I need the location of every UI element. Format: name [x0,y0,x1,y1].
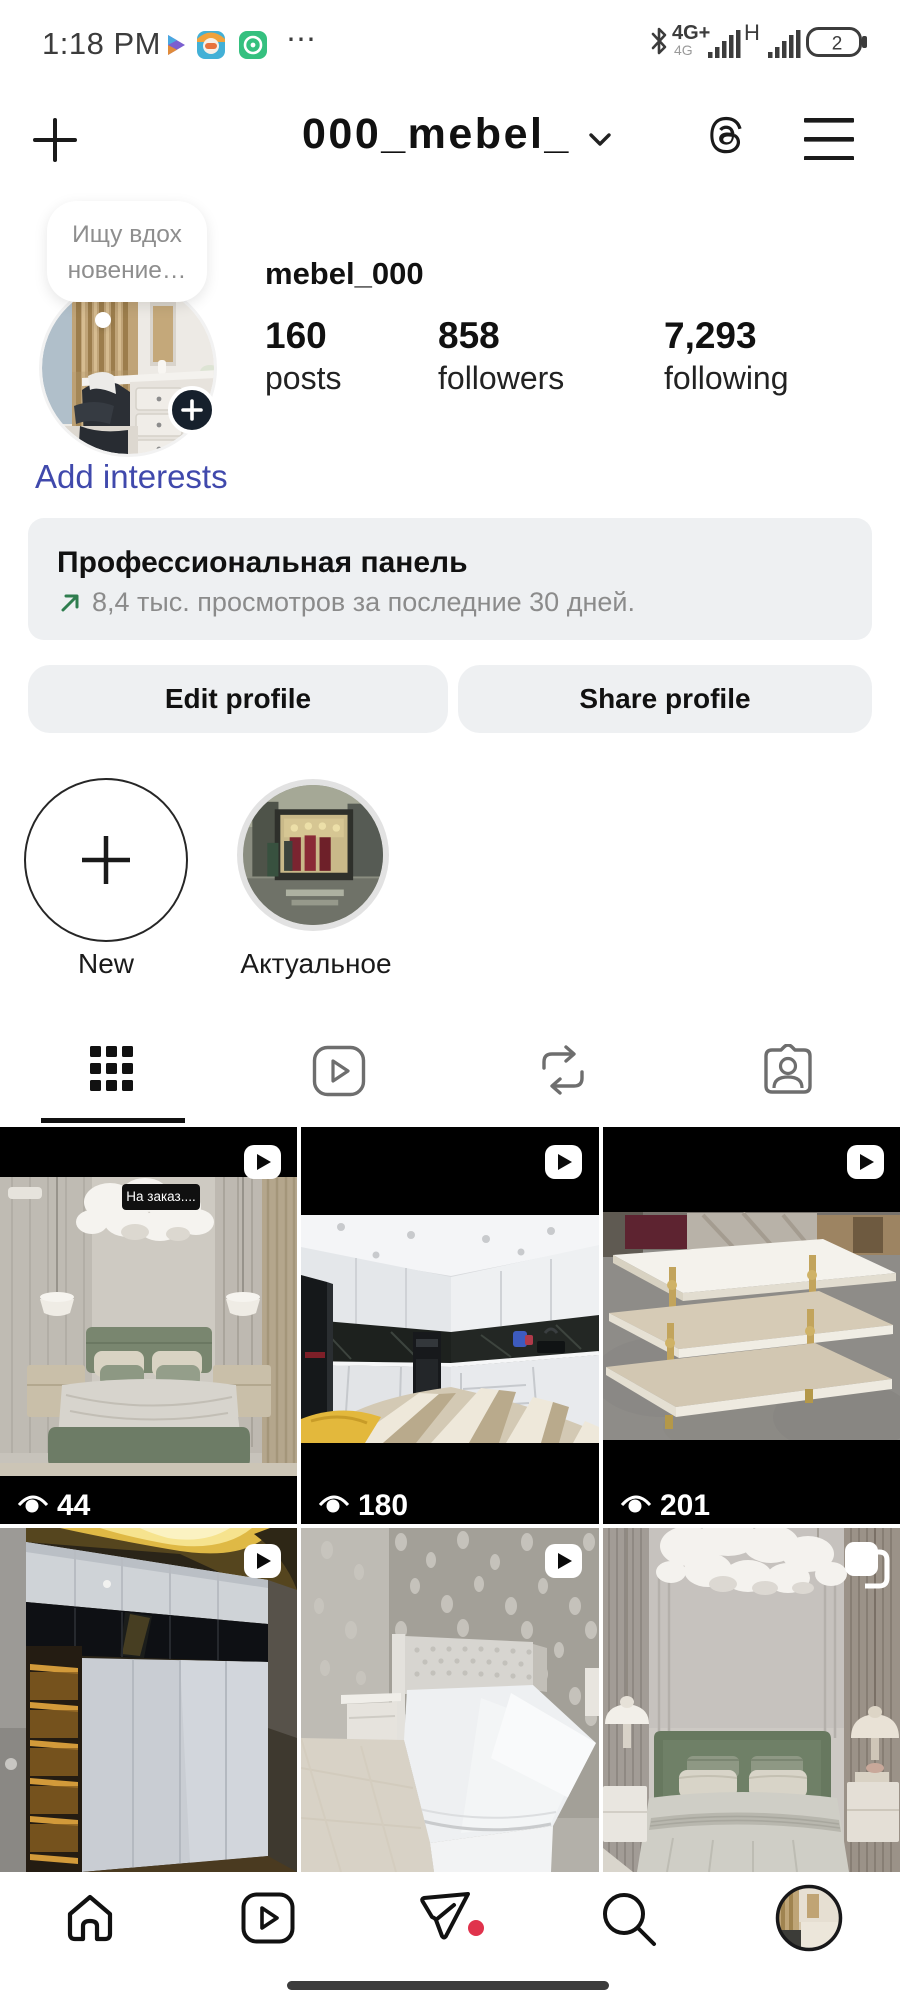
svg-text:На заказ....: На заказ.... [126,1189,195,1204]
svg-text:180: 180 [358,1489,408,1522]
svg-text:44: 44 [57,1489,91,1522]
svg-text:2: 2 [832,34,843,55]
svg-text:201: 201 [660,1489,710,1522]
